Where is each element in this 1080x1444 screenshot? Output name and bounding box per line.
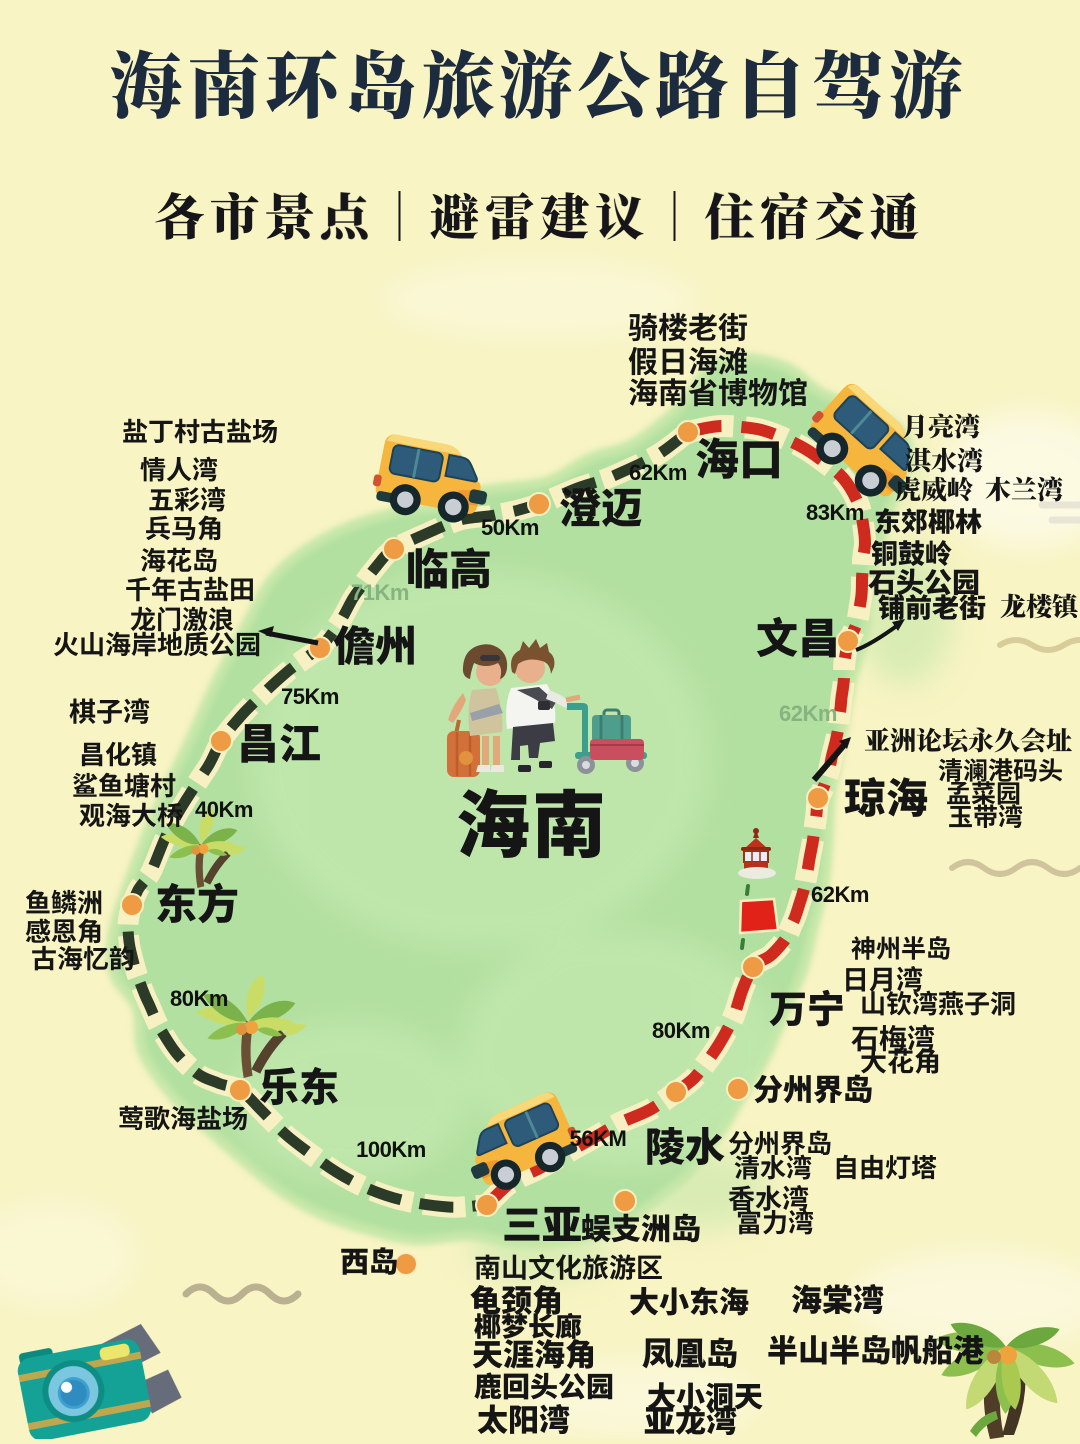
svg-text:62Km: 62Km	[811, 882, 869, 907]
svg-text:83Km: 83Km	[806, 500, 864, 525]
svg-text:80Km: 80Km	[652, 1018, 710, 1043]
svg-text:100Km: 100Km	[356, 1137, 426, 1162]
svg-text:75Km: 75Km	[281, 684, 339, 709]
svg-text:40Km: 40Km	[195, 797, 253, 822]
svg-text:62Km: 62Km	[629, 460, 687, 485]
svg-text:56KM: 56KM	[570, 1126, 627, 1151]
svg-text:71Km: 71Km	[351, 580, 409, 605]
svg-text:62Km: 62Km	[779, 701, 837, 726]
svg-text:50Km: 50Km	[481, 515, 539, 540]
svg-text:80Km: 80Km	[170, 986, 228, 1011]
